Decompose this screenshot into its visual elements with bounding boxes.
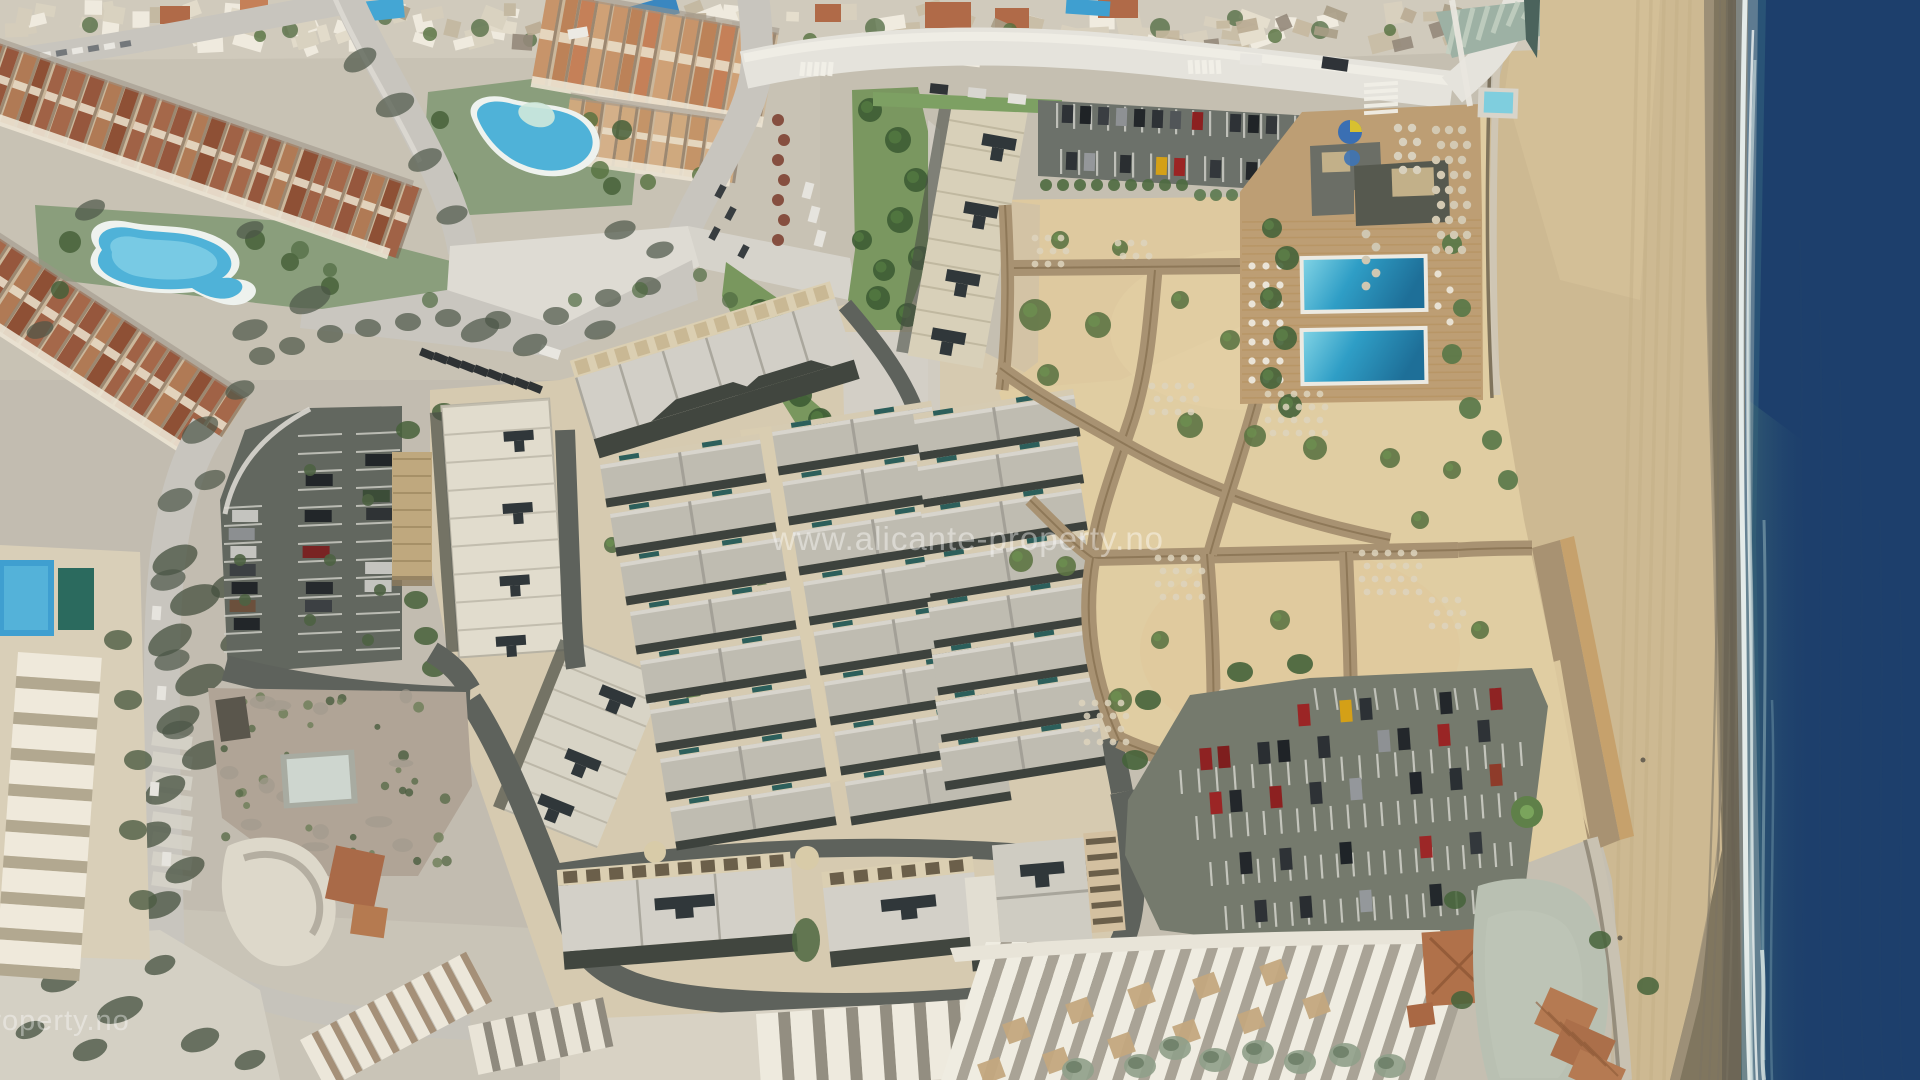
- svg-text:www.alicante-property.no: www.alicante-property.no: [771, 520, 1164, 557]
- svg-text:property.no: property.no: [0, 1005, 130, 1037]
